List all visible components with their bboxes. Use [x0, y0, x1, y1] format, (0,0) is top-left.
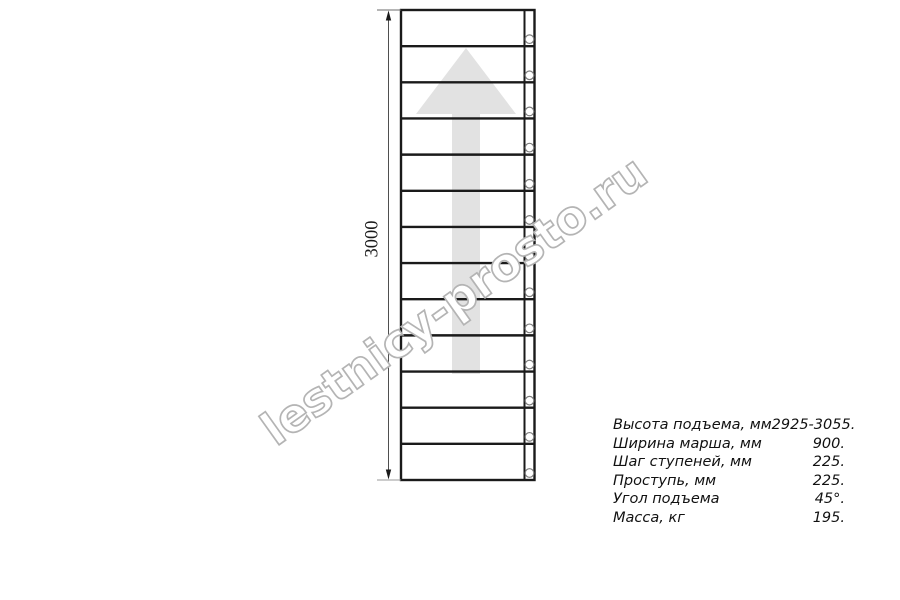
spec-label: Высота подъема, мм	[613, 416, 772, 435]
dimension-3000: 3000	[363, 10, 402, 480]
bolt-circle	[525, 107, 534, 116]
spec-row-mass: Масса, кг 195.	[613, 509, 845, 528]
bolt-circle	[525, 71, 534, 80]
spec-row-width: Ширина марша, мм 900.	[613, 435, 845, 454]
spec-value: 195.	[813, 509, 845, 528]
bolt-circle	[525, 360, 534, 369]
bolt-circle	[525, 143, 534, 152]
bolt-circle	[525, 396, 534, 405]
dimension-arrow-top	[386, 11, 391, 21]
bolt-circle	[525, 324, 534, 333]
spec-value: 225.	[813, 472, 845, 491]
bolt-circle	[525, 288, 534, 297]
bolt-circle	[525, 35, 534, 44]
bolt-circle	[525, 433, 534, 442]
spec-label: Ширина марша, мм	[613, 435, 762, 454]
spec-value: 225.	[813, 453, 845, 472]
spec-row-angle: Угол подъема 45°.	[613, 490, 845, 509]
spec-row-step: Шаг ступеней, мм 225.	[613, 453, 845, 472]
bolt-circle	[525, 469, 534, 478]
spec-label: Проступь, мм	[613, 472, 716, 491]
technical-drawing-page: 3000 lestnicy-prosto.ru Высота подъема, …	[0, 0, 900, 600]
spec-row-tread: Проступь, мм 225.	[613, 472, 845, 491]
specifications-table: Высота подъема, мм 2925-3055. Ширина мар…	[613, 416, 845, 528]
spec-value: 45°.	[815, 490, 845, 509]
spec-row-height: Высота подъема, мм 2925-3055.	[613, 416, 845, 435]
bolt-circle	[525, 179, 534, 188]
spec-label: Угол подъема	[613, 490, 720, 509]
spec-label: Шаг ступеней, мм	[613, 453, 752, 472]
dimension-arrow-bottom	[386, 470, 391, 480]
spec-value: 900.	[813, 435, 845, 454]
spec-label: Масса, кг	[613, 509, 685, 528]
dimension-value-label: 3000	[363, 221, 383, 258]
spec-value: 2925-3055.	[772, 416, 856, 435]
